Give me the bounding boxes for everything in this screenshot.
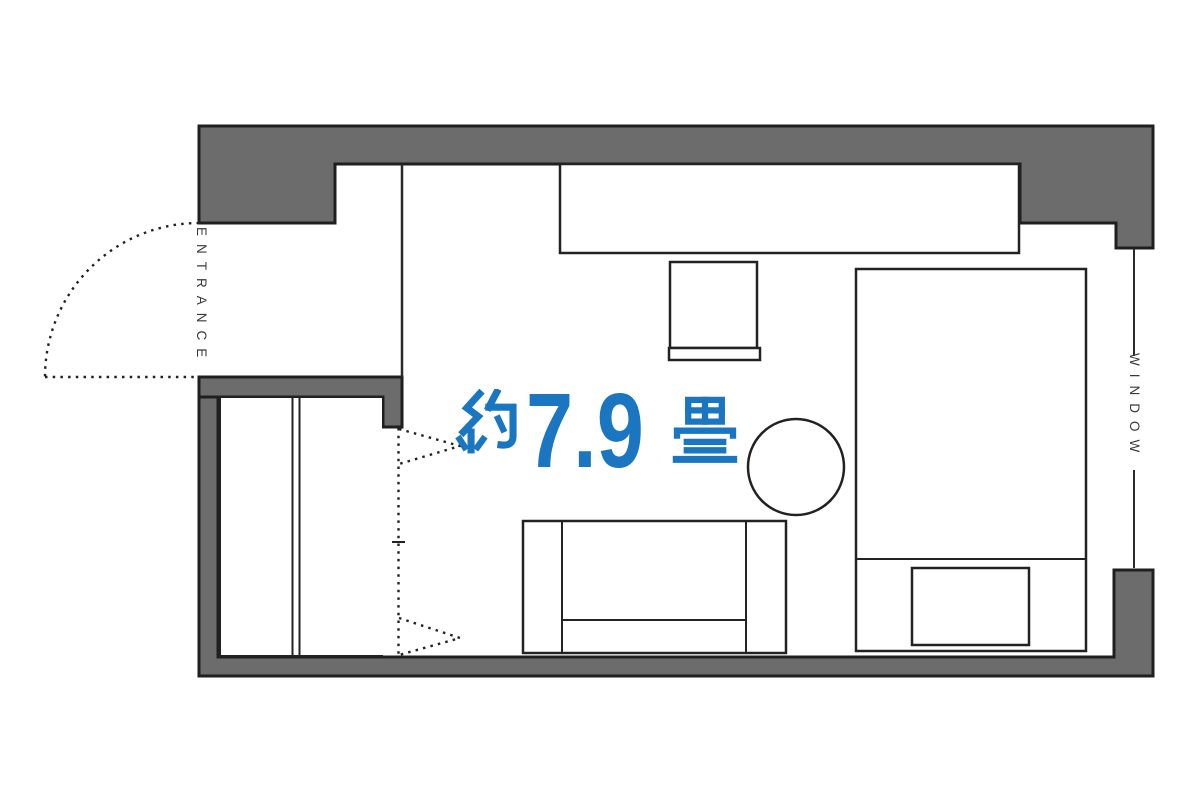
chair-seat	[670, 262, 757, 348]
entrance-door	[45, 223, 199, 377]
chair-backrest	[669, 348, 760, 360]
closet	[219, 397, 460, 656]
floor-plan: ENTRANCE WINDOW 7.9	[0, 0, 1200, 800]
bed-pillow	[912, 568, 1029, 645]
kanji-jou-icon	[670, 391, 740, 469]
window-label: WINDOW	[1123, 353, 1145, 460]
entrance-label: ENTRANCE	[190, 227, 212, 365]
counter-desk	[560, 164, 1019, 253]
closet-folding-door-bottom-triangle	[399, 618, 460, 655]
entrance-door-arc	[45, 223, 199, 377]
area-number: 7.9	[526, 378, 644, 484]
room-area-label: 7.9	[448, 385, 778, 495]
kanji-yaku-icon	[454, 389, 518, 461]
